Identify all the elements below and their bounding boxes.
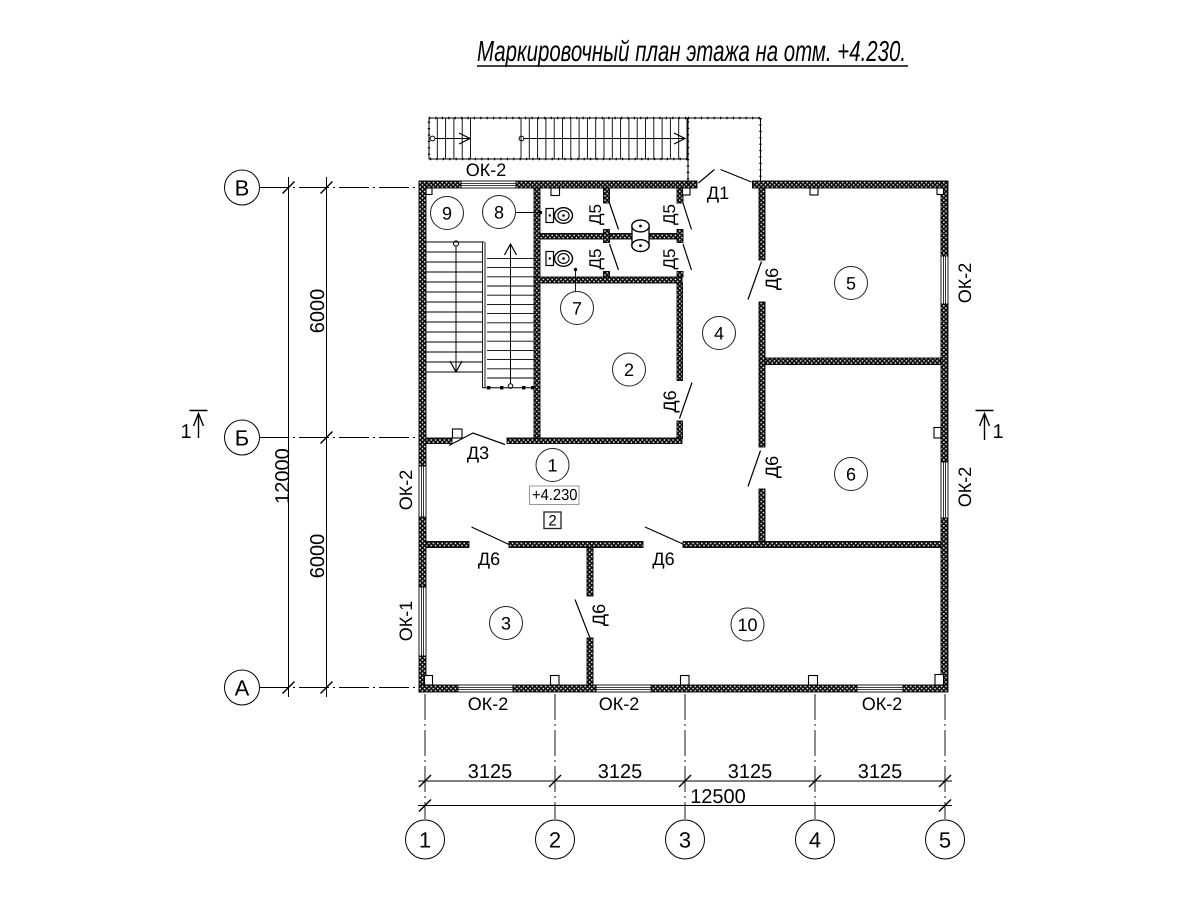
svg-text:3: 3 [679, 828, 691, 853]
svg-text:5: 5 [939, 828, 951, 853]
svg-text:12500: 12500 [690, 786, 746, 808]
svg-text:Д1: Д1 [707, 183, 729, 203]
svg-text:12000: 12000 [272, 448, 294, 504]
svg-text:4: 4 [714, 323, 724, 343]
svg-text:2: 2 [549, 828, 561, 853]
svg-text:4: 4 [809, 828, 821, 853]
svg-text:+4.230: +4.230 [532, 487, 578, 504]
svg-text:6000: 6000 [307, 289, 329, 334]
svg-text:1: 1 [419, 828, 431, 853]
svg-text:Д5: Д5 [660, 249, 679, 270]
svg-text:6000: 6000 [307, 534, 329, 579]
svg-text:5: 5 [846, 273, 856, 293]
svg-text:6: 6 [846, 464, 856, 484]
svg-text:А: А [235, 676, 250, 701]
svg-text:2: 2 [548, 513, 556, 530]
svg-text:1: 1 [992, 421, 1003, 443]
svg-text:ОК-2: ОК-2 [955, 263, 975, 304]
svg-text:ОК-2: ОК-2 [466, 160, 507, 180]
svg-text:10: 10 [737, 615, 757, 635]
svg-text:1: 1 [180, 421, 191, 443]
svg-text:3125: 3125 [598, 761, 643, 783]
svg-text:Д6: Д6 [652, 549, 674, 569]
svg-text:Д5: Д5 [586, 249, 605, 270]
svg-text:2: 2 [624, 360, 634, 380]
svg-text:ОК-2: ОК-2 [862, 694, 903, 714]
svg-text:Д5: Д5 [660, 204, 679, 225]
svg-text:7: 7 [572, 298, 582, 318]
svg-text:1: 1 [547, 455, 557, 475]
svg-text:3: 3 [501, 613, 511, 633]
svg-text:8: 8 [494, 202, 504, 222]
svg-text:Маркировочный план этажа на от: Маркировочный план этажа на отм. +4.230. [477, 36, 906, 68]
svg-text:ОК-2: ОК-2 [599, 694, 640, 714]
svg-text:3125: 3125 [858, 761, 903, 783]
svg-text:Д3: Д3 [467, 443, 489, 463]
svg-text:Д6: Д6 [478, 549, 500, 569]
svg-text:Д6: Д6 [589, 604, 609, 626]
svg-text:3125: 3125 [728, 761, 773, 783]
svg-text:Д5: Д5 [586, 204, 605, 225]
svg-text:ОК-2: ОК-2 [955, 467, 975, 508]
svg-text:3125: 3125 [468, 761, 513, 783]
svg-text:9: 9 [442, 203, 452, 223]
svg-text:Д6: Д6 [660, 390, 680, 412]
svg-text:Б: Б [235, 426, 249, 451]
svg-text:ОК-2: ОК-2 [396, 470, 416, 511]
svg-text:ОК-1: ОК-1 [396, 601, 416, 642]
svg-text:Д6: Д6 [762, 268, 782, 290]
svg-text:Д6: Д6 [762, 456, 782, 478]
svg-text:ОК-2: ОК-2 [468, 694, 509, 714]
svg-text:В: В [235, 176, 250, 201]
